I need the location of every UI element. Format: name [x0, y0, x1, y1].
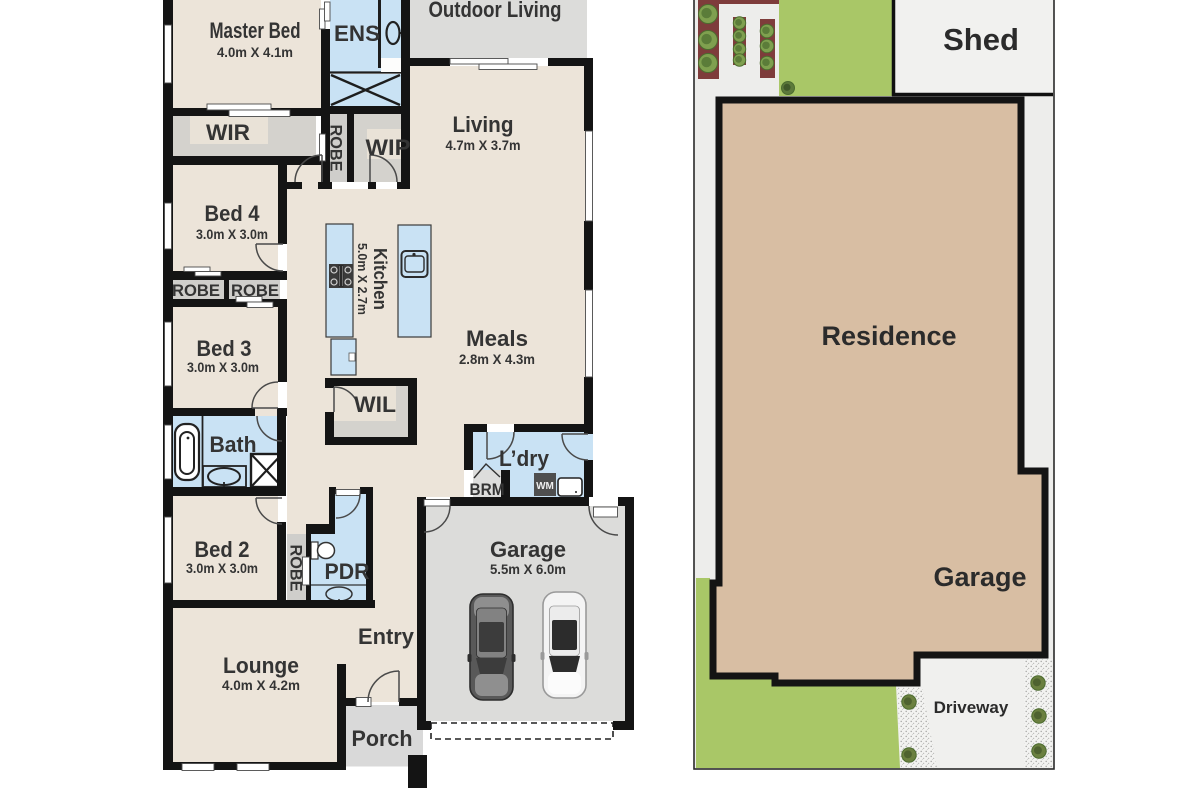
- svg-text:Entry: Entry: [358, 624, 415, 649]
- svg-text:Lounge: Lounge: [223, 653, 299, 678]
- svg-text:PDR: PDR: [325, 559, 370, 584]
- svg-text:Garage: Garage: [933, 562, 1026, 592]
- svg-text:L’dry: L’dry: [499, 446, 550, 471]
- svg-text:Bed 3: Bed 3: [197, 336, 252, 361]
- svg-text:Bed 4: Bed 4: [205, 201, 261, 226]
- svg-text:3.0m X 3.0m: 3.0m X 3.0m: [187, 359, 259, 375]
- svg-text:5.5m X 6.0m: 5.5m X 6.0m: [490, 561, 566, 577]
- svg-text:ENS: ENS: [334, 21, 380, 46]
- svg-text:Kitchen: Kitchen: [370, 248, 390, 310]
- svg-text:WIR: WIR: [206, 120, 250, 145]
- svg-text:4.0m X 4.2m: 4.0m X 4.2m: [222, 677, 300, 693]
- svg-text:5.0m X 2.7m: 5.0m X 2.7m: [355, 243, 370, 315]
- svg-text:ROBE: ROBE: [231, 281, 279, 300]
- svg-text:Meals: Meals: [466, 326, 528, 351]
- svg-text:WM: WM: [536, 481, 554, 492]
- svg-text:Garage: Garage: [490, 537, 566, 562]
- svg-text:BRM: BRM: [470, 480, 505, 499]
- svg-text:3.0m X 3.0m: 3.0m X 3.0m: [196, 226, 268, 242]
- svg-text:3.0m X 3.0m: 3.0m X 3.0m: [186, 560, 258, 576]
- svg-text:WIL: WIL: [354, 392, 396, 417]
- svg-text:ROBE: ROBE: [287, 545, 306, 592]
- svg-text:Outdoor Living: Outdoor Living: [429, 0, 562, 22]
- svg-text:2.8m X 4.3m: 2.8m X 4.3m: [459, 351, 535, 367]
- svg-text:Living: Living: [453, 112, 514, 137]
- svg-text:Bath: Bath: [210, 432, 257, 457]
- svg-text:ROBE: ROBE: [327, 125, 346, 172]
- svg-text:Porch: Porch: [352, 726, 413, 751]
- svg-text:Residence: Residence: [821, 321, 956, 351]
- svg-text:4.7m X 3.7m: 4.7m X 3.7m: [446, 137, 521, 153]
- svg-text:ROBE: ROBE: [172, 281, 220, 300]
- svg-text:Master Bed: Master Bed: [210, 18, 301, 43]
- svg-text:Shed: Shed: [943, 22, 1019, 57]
- svg-text:WIP: WIP: [366, 135, 411, 160]
- svg-text:Driveway: Driveway: [934, 698, 1009, 717]
- svg-text:4.0m X 4.1m: 4.0m X 4.1m: [217, 44, 293, 60]
- svg-text:Bed 2: Bed 2: [195, 537, 250, 562]
